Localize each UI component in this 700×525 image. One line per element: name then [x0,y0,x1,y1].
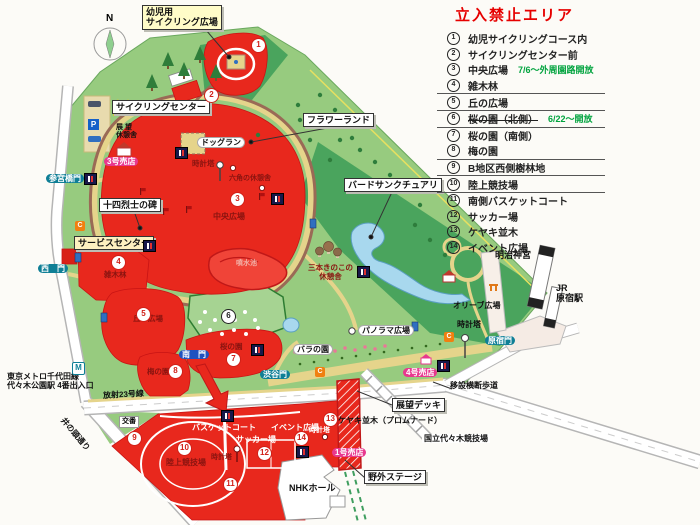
restroom-icon [251,344,264,356]
legend-item-8: 8梅の園 [437,143,605,159]
label-gate-west: 西 門 [38,264,68,273]
map-badge-2: 2 [204,88,219,103]
legend-item-13: 13ケヤキ並木 [437,224,605,240]
label-bird-sanctuary: バードサンクチュアリ [344,178,442,192]
map-badge-4: 4 [111,255,126,270]
legend-item-5: 5丘の広場 [437,93,605,110]
restroom-icon [221,410,234,422]
label-outdoor-stage: 野外ステージ [364,470,426,484]
label-sakura-south: 桜の園 [220,343,243,352]
label-hexagon-resthouse: 六角の休憩舎 [229,175,271,183]
legend-panel: 立入禁止エリア 1幼児サイクリングコース内 2サイクリングセンター前 3中央広場… [437,2,605,255]
label-ume-garden: 梅の園 [147,368,170,377]
park-map-page: N 幼児用 サイクリング広場 フラワーランド バードサンクチュアリ 十四烈士の碑… [0,0,700,525]
parking-icon: P [88,119,99,130]
label-clock-east: 時計塔 [457,320,481,329]
label-nhk-hall: NHKホール [289,483,336,493]
map-badge-9: 9 [127,431,142,446]
label-basket-court: バスケットコート [192,423,256,432]
label-gate-south: 南 門 [179,350,209,359]
legend-num-8: 8 [447,144,460,157]
legend-item-3: 3中央広場7/6～外周園路開放 [437,62,605,78]
label-inokashira-street: 井の頭通り [59,416,92,453]
restroom-icon [296,446,309,458]
restroom-icon [271,193,284,205]
map-badge-14: 14 [294,431,309,446]
legend-num-2: 2 [447,48,460,61]
legend-item-2: 2サイクリングセンター前 [437,47,605,63]
legend-num-4: 4 [447,79,460,92]
label-dog-run: ドッグラン [197,137,245,148]
legend-item-11: 11南側バスケットコート [437,193,605,209]
label-mushroom-resthouse: 三本きのこの 休憩舎 [308,264,353,281]
map-badge-13: 13 [323,412,338,427]
legend-item-9: 9B地区西側樹林地 [437,159,605,176]
legend-item-7: 7桜の園（南側） [437,128,605,144]
label-monument-14: 十四烈士の碑 [99,198,161,212]
restroom-icon [437,360,450,372]
label-lookout-resthouse: 展 望 休憩舎 [116,124,137,140]
phone-icon: C [444,332,454,342]
map-badge-8: 8 [168,364,183,379]
map-badge-5: 5 [136,307,151,322]
phone-icon: C [315,367,325,377]
label-fountain-pond: 噴水池 [236,260,257,268]
map-badge-10: 10 [177,441,192,456]
legend-item-14: 14イベント広場 [437,240,605,256]
label-hosha-23: 放射23号線 [103,389,144,400]
restroom-icon [84,173,97,185]
label-olive-square: オリーブ広場 [453,301,501,310]
legend-num-7: 7 [447,129,460,142]
map-badge-3: 3 [230,192,245,207]
label-gate-shibuya: 渋谷門 [260,370,290,379]
label-clock-central: 時計塔 [192,160,215,169]
map-badge-6: 6 [221,309,236,324]
label-cycling-center: サイクリングセンター [112,100,210,114]
phone-icon: C [75,221,85,231]
label-panorama-square: パノラマ広場 [358,325,414,336]
map-overlay: N 幼児用 サイクリング広場 フラワーランド バードサンクチュアリ 十四烈士の碑… [0,0,700,525]
label-gate-sangubashi: 参宮橋門 [46,174,84,183]
legend-item-6: 6桜の園（北側）6/22～開放 [437,110,605,128]
legend-num-13: 13 [447,225,460,238]
label-soccer-field: サッカー場 [236,435,276,444]
label-keyaki-promenade: ケヤキ並木（プロムナード） [338,416,442,425]
legend-num-1: 1 [447,32,460,45]
label-service-center: サービスセンター [74,236,154,250]
legend-num-14: 14 [447,241,460,254]
compass-north-label: N [106,13,113,24]
label-clock-b: 時計塔 [211,454,232,462]
label-athletics-field: 陸上競技場 [166,458,206,467]
restroom-icon [175,147,188,159]
label-shop-1: 1号売店 [332,448,366,457]
label-rose-garden: バラの園 [293,344,333,355]
label-relocated-crosswalk: 移設横断歩道 [450,381,498,390]
label-flower-land: フラワーランド [303,113,374,127]
label-gate-harajuku: 原宿門 [485,336,515,345]
legend-title: 立入禁止エリア [455,4,605,25]
label-yoyogi-stadium: 国立代々木競技場 [422,434,490,443]
legend-item-4: 4雑木林 [437,78,605,94]
label-lookout-deck: 展望デッキ [392,398,445,412]
label-shop-4: 4号売店 [403,368,437,377]
label-jr-harajuku: JR 原宿駅 [556,283,583,304]
legend-item-12: 12サッカー場 [437,209,605,225]
map-badge-7: 7 [226,352,241,367]
legend-item-1: 1幼児サイクリングコース内 [437,31,605,47]
map-badge-1: 1 [251,38,266,53]
restroom-icon [143,240,156,252]
legend-item-10: 10陸上競技場 [437,175,605,193]
label-police-box: 交番 [119,416,139,428]
label-kids-cycling-square: 幼児用 サイクリング広場 [142,5,222,30]
legend-num-10: 10 [447,178,460,191]
legend-num-9: 9 [447,161,460,174]
legend-num-5: 5 [447,96,460,109]
legend-num-11: 11 [447,194,460,207]
restroom-icon [357,266,370,278]
label-zokibayashi: 雑木林 [104,271,127,280]
label-shop-3: 3号売店 [104,157,138,166]
label-clock-event: 時計塔 [309,427,330,435]
legend-num-12: 12 [447,210,460,223]
label-central-plaza: 中央広場 [213,212,245,221]
map-badge-11: 11 [223,477,238,492]
legend-num-6: 6 [447,112,460,125]
legend-num-3: 3 [447,63,460,76]
metro-icon: M [72,362,85,375]
map-badge-12: 12 [257,446,272,461]
